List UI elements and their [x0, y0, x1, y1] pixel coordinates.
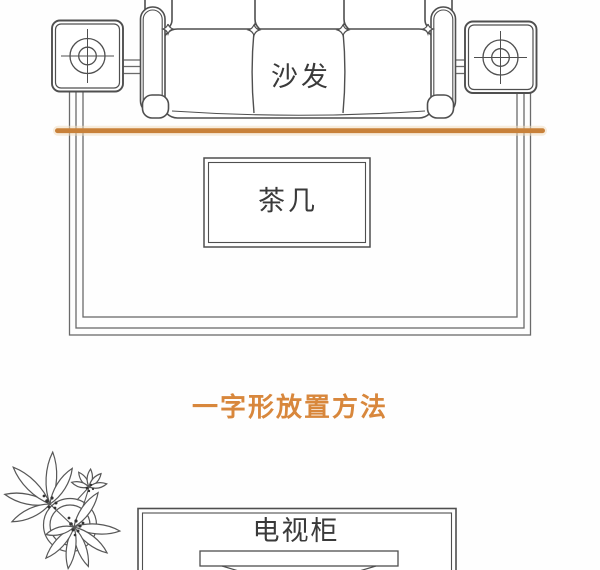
sofa-label: 沙发 [241, 61, 361, 93]
potted-plant-icon [4, 452, 120, 569]
side-table-right [465, 22, 537, 94]
armrest-right [428, 7, 456, 118]
layout-caption: 一字形放置方法 [140, 392, 440, 422]
side-table-left [52, 21, 123, 92]
armrest-left [141, 7, 169, 118]
furniture-layout-diagram: 沙发 茶几 一字形放置方法 电视柜 [0, 0, 600, 570]
tv-cabinet-label: 电视柜 [221, 515, 371, 547]
coffee-table-label: 茶几 [228, 185, 348, 217]
sofa-back-cushions [167, 0, 431, 32]
sofa [141, 0, 456, 118]
divider-line [53, 126, 547, 136]
